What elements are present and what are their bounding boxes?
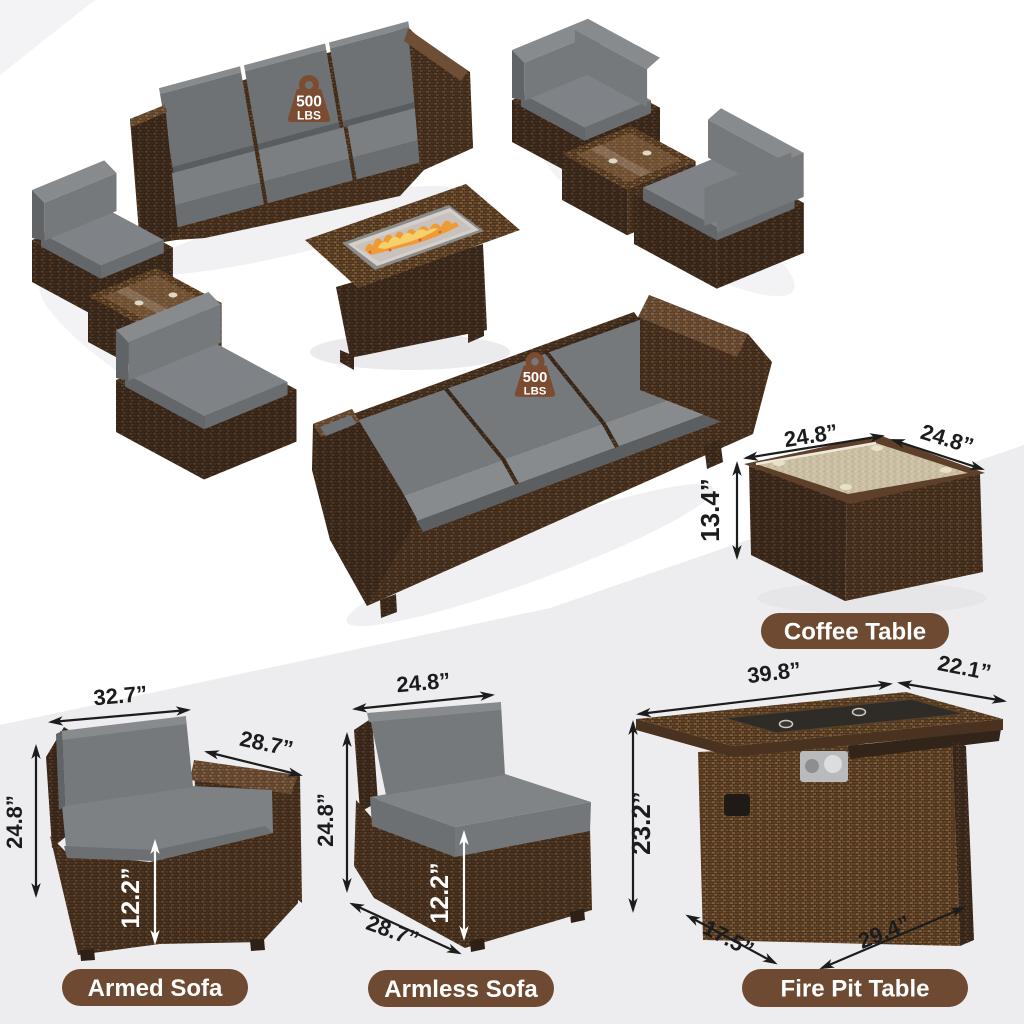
svg-text:Armless Sofa: Armless Sofa [384,976,538,1003]
svg-text:12.2”: 12.2” [426,862,454,923]
svg-text:500: 500 [523,370,548,386]
svg-text:12.2”: 12.2” [117,867,145,928]
svg-text:Fire Pit Table: Fire Pit Table [781,976,930,1003]
svg-text:32.7”: 32.7” [92,681,148,711]
svg-text:24.8”: 24.8” [2,795,27,849]
svg-text:LBS: LBS [297,109,321,123]
svg-text:24.8”: 24.8” [395,668,451,698]
svg-text:Armed Sofa: Armed Sofa [88,975,223,1002]
svg-text:Coffee Table: Coffee Table [784,619,926,646]
svg-text:LBS: LBS [524,385,547,397]
svg-text:13.4”: 13.4” [695,478,725,542]
svg-text:23.2”: 23.2” [626,791,656,855]
svg-text:24.8”: 24.8” [313,793,338,847]
